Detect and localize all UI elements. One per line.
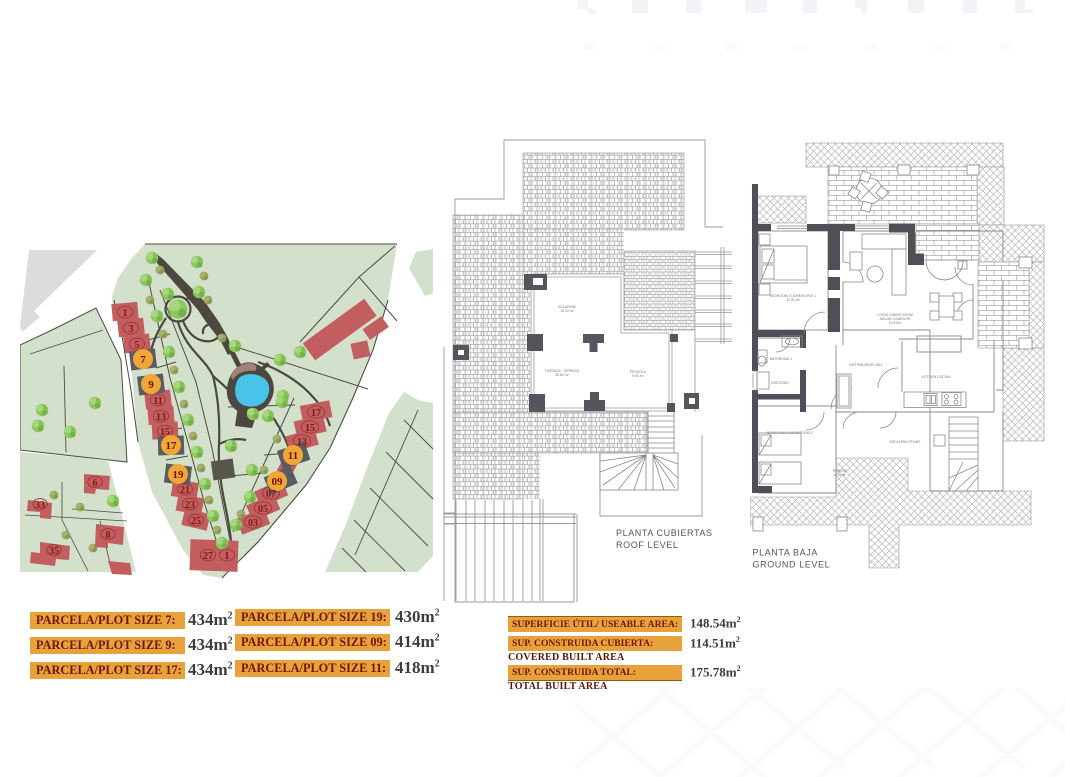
svg-text:BATHROOM 1: BATHROOM 1 <box>770 357 792 361</box>
svg-text:PLANTA BAJA: PLANTA BAJA <box>753 548 818 558</box>
svg-text:25: 25 <box>191 516 201 527</box>
svg-text:GROUND LEVEL: GROUND LEVEL <box>753 560 831 570</box>
svg-text:17: 17 <box>166 440 178 452</box>
svg-text:6: 6 <box>93 478 98 489</box>
svg-text:35.80 m²: 35.80 m² <box>555 373 569 377</box>
svg-text:DRESSING: DRESSING <box>771 381 789 385</box>
svg-text:03: 03 <box>248 518 258 529</box>
svg-text:9.06 m²: 9.06 m² <box>632 374 644 378</box>
svg-text:1: 1 <box>123 308 128 319</box>
svg-text:13: 13 <box>156 412 166 423</box>
svg-text:DISTRIBUIDOR HALL: DISTRIBUIDOR HALL <box>849 363 883 367</box>
svg-text:7: 7 <box>140 354 146 366</box>
svg-text:35: 35 <box>49 546 59 557</box>
svg-text:17: 17 <box>311 408 321 419</box>
svg-text:1: 1 <box>225 551 230 562</box>
svg-text:11: 11 <box>153 396 162 407</box>
svg-text:05: 05 <box>258 504 268 515</box>
svg-text:PLANTA CUBIERTAS: PLANTA CUBIERTAS <box>616 528 713 538</box>
svg-text:BEDROOM 2 DORMITORIO 2: BEDROOM 2 DORMITORIO 2 <box>767 431 813 435</box>
svg-text:ESCALERA STAIRS: ESCALERA STAIRS <box>890 440 922 444</box>
svg-text:ROOF LEVEL: ROOF LEVEL <box>616 540 679 550</box>
svg-text:23: 23 <box>185 500 195 511</box>
svg-text:15.34 m²: 15.34 m² <box>560 309 574 313</box>
svg-text:09: 09 <box>272 476 284 488</box>
svg-text:8.35 m²: 8.35 m² <box>834 473 846 477</box>
svg-text:12.01 m²: 12.01 m² <box>786 298 800 302</box>
svg-text:5: 5 <box>135 340 140 351</box>
svg-text:15: 15 <box>160 427 170 438</box>
svg-text:KITCHEN COCINA: KITCHEN COCINA <box>921 375 951 379</box>
svg-text:07: 07 <box>266 489 276 500</box>
svg-text:21: 21 <box>180 485 190 496</box>
svg-text:9: 9 <box>148 379 154 391</box>
svg-text:15: 15 <box>305 423 315 434</box>
svg-text:8: 8 <box>106 530 111 541</box>
svg-text:3: 3 <box>129 324 134 335</box>
svg-text:33: 33 <box>35 500 45 511</box>
svg-text:13: 13 <box>297 437 307 448</box>
svg-text:27: 27 <box>203 551 213 562</box>
svg-text:22.57m²: 22.57m² <box>889 321 902 325</box>
svg-text:11: 11 <box>288 450 298 462</box>
svg-text:19: 19 <box>173 469 185 481</box>
